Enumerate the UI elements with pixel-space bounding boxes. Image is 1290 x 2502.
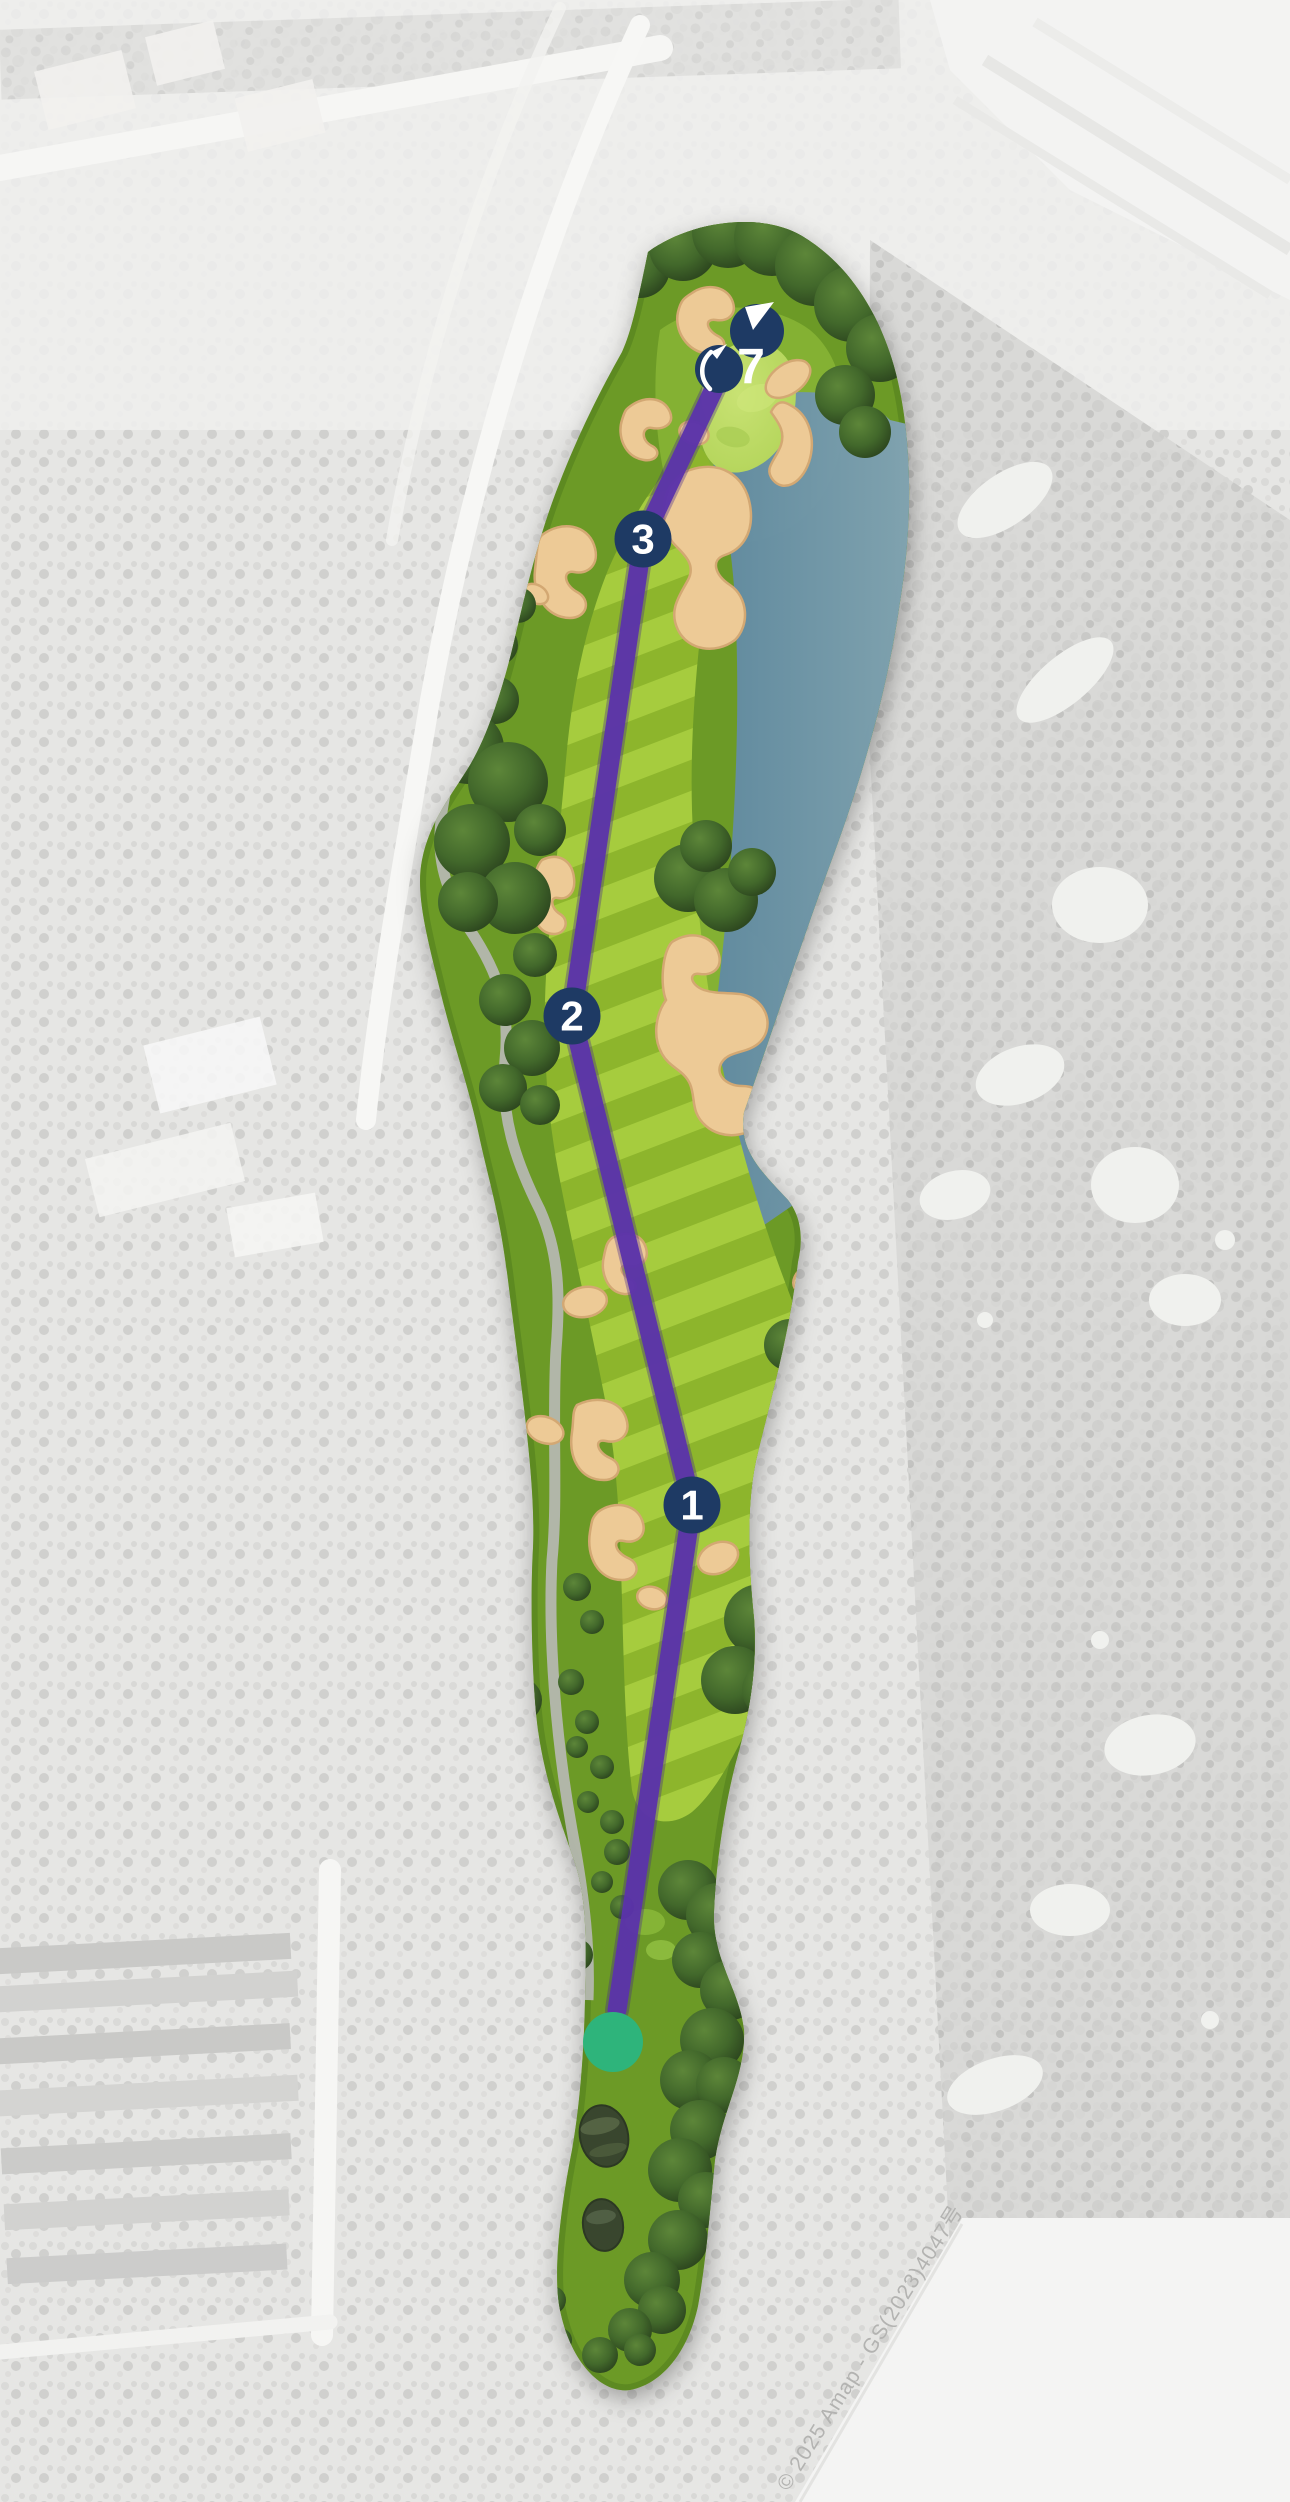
map-canvas[interactable]: 1 2 3 7 © 2025 Amap - GS(2023)4047号 — [0, 0, 1290, 2502]
tee-marker[interactable] — [583, 2012, 643, 2072]
waypoint-marker-1[interactable]: 1 — [664, 1477, 721, 1534]
hole-number-label: 7 — [737, 339, 765, 395]
waypoint-marker-2[interactable]: 2 — [544, 988, 601, 1045]
golf-hole-map: 1 2 3 7 © 2025 Amap - GS(2023)4047号 — [0, 0, 1290, 2502]
waypoint-marker-3[interactable]: 3 — [615, 511, 672, 568]
waypoint-label: 2 — [560, 993, 583, 1040]
bunker — [571, 1400, 627, 1480]
waypoint-label: 3 — [631, 516, 654, 563]
waypoint-label: 1 — [680, 1482, 703, 1529]
